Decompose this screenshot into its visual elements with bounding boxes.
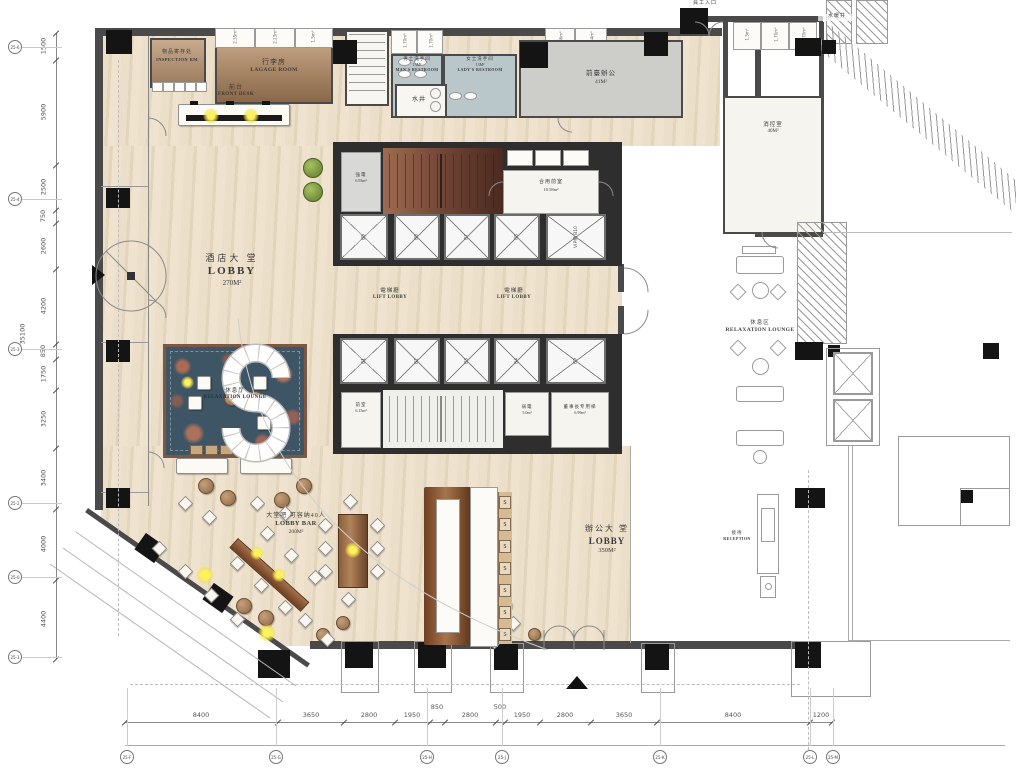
grid-ext [22,577,62,578]
grid-ext [22,503,62,504]
door-arcs [148,22,778,650]
label-chairman-lift: 董事長专用梯6.99m² [549,404,611,415]
dim-value: 4000 [39,536,47,553]
dim-value: 8400 [725,711,742,719]
label-lift-lobby-east: 電梯廳LIFT LOBBY [484,288,544,302]
dim-value: 2600 [39,238,47,255]
dim-value: 4200 [39,298,47,315]
dim-value: 2800 [557,711,574,719]
terrace-lines [50,532,296,718]
label-front-office: 前臺辦公41M² [561,70,641,86]
grid-bubble: 25-H [420,750,434,764]
dim-value: 3650 [616,711,633,719]
grid-ext [22,199,62,200]
dim-total: 35100 [18,324,26,345]
dim-value: 1500 [39,38,47,55]
dim-value: 2500 [39,179,47,196]
dim-line-bottom [125,722,832,723]
grid-ext [276,688,277,746]
grid-ext [22,47,62,48]
label-fire-control: 消控室40M² [743,122,803,136]
label-reception: 接待RECEPTION [716,530,758,541]
grid-ext [660,688,661,746]
dim-value: 3650 [303,711,320,719]
grid-bubble: 25-0 [8,570,22,584]
dim-value: 500 [494,703,506,711]
label-water-well: 水井 [399,96,439,104]
label-inspection: 物品寄存处INSPECTION RM [146,50,208,63]
dim-value: 5900 [39,104,47,121]
dim-line-left [56,33,57,659]
grid-bubble: 25-J [495,750,509,764]
grid-ext [502,688,503,746]
label-hotel-lobby: 酒店大 堂LOBBY270M² [192,252,272,288]
floor-plan: 2.35m² 2.23m² 1.5m² 1.70m² 1.70m² 1.86m²… [0,0,1016,771]
dim-value: 750 [39,210,47,222]
label-ladys-restroom: 女士洗手间13M²LADY'S RESTROOM [450,56,510,73]
label-weak-power: 弱電5.0m² [505,404,549,415]
label-shared-vestibule: 合用前室10.58m² [511,180,591,193]
label-office-lobby: 辦公大 堂LOBBY350M² [565,524,649,556]
grid-ext [127,688,128,746]
label-lift-lobby-west: 電梯廳LIFT LOBBY [360,288,420,302]
grid-bubble: 25-1 [8,650,22,664]
dim-value: 1200 [813,711,830,719]
grid-bubble: 25-M [826,750,840,764]
label-mens-restroom: 男士洗手间13M²MAN'S RESTROOM [389,56,445,73]
dim-value: 850 [431,703,443,711]
dim-value: 2800 [361,711,378,719]
grid-ext [833,688,834,746]
revolving-door [96,241,166,311]
label-relax-right: 休息区RELAXATION LOUNGE [712,320,808,335]
grid-bubble: 25-L [803,750,817,764]
dim-value: 8400 [193,711,210,719]
label-staff-entrance: 員工入口 [683,1,727,8]
dim-value: 3400 [39,470,47,487]
label-plumbing-shaft: 水暖井 [818,14,856,21]
dim-value: 4400 [39,611,47,628]
dim-value: 1950 [404,711,421,719]
dim-value: 1950 [514,711,531,719]
grid-ext [22,349,62,350]
grid-bubble: 25-3 [8,342,22,356]
dim-value: 2800 [462,711,479,719]
label-lobby-bar: 大堂吧 可容纳40人LOBBY BAR200M² [254,512,338,536]
label-vestibule: 前室6.15m² [341,402,381,413]
grid-bubble: 25-K [653,750,667,764]
label-luggage: 行李房LAGAGE ROOM [234,58,314,75]
dim-value: 1750 [39,366,47,383]
dim-value: 3250 [39,411,47,428]
grid-bubble: 25-4 [8,192,22,206]
grid-bubble: 25-F [120,750,134,764]
label-front-desk: 前台FRONT DESK [206,84,266,99]
grid-ext [22,657,62,658]
grid-bubble: 25-2 [8,496,22,510]
grid-bubble: 25-G [269,750,283,764]
grid-ext [427,688,428,746]
grid-ext [810,688,811,746]
dim-line-bottom2 [125,745,1005,746]
s-sofa [231,353,281,453]
dim-value: 850 [39,345,47,357]
overlay-drawing [0,0,1016,771]
label-relax-left: 休息厅RELAXATION LOUNGE [193,388,277,402]
grid-bubble: 25-6 [8,40,22,54]
label-strong-power: 強電6.93m² [341,172,381,183]
